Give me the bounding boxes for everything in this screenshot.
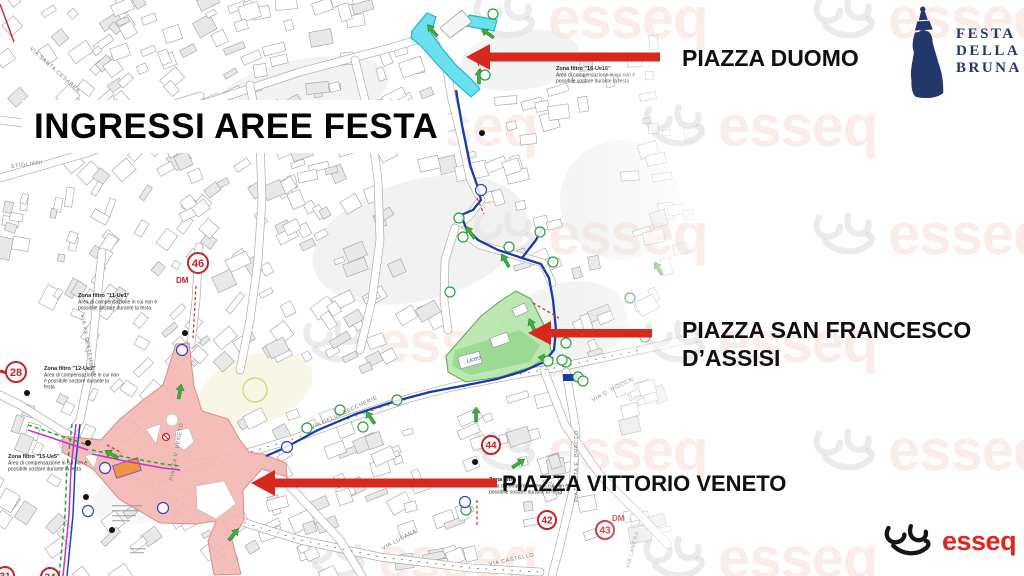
numbered-marker-43: 43 xyxy=(596,521,614,539)
building-block xyxy=(180,44,197,58)
building-block xyxy=(683,125,705,144)
building-block xyxy=(366,333,386,350)
green-gate-marker xyxy=(454,213,464,223)
junction-dot xyxy=(83,494,89,500)
building-block xyxy=(241,50,262,65)
numbered-marker-46: 46 xyxy=(188,253,208,273)
building-block xyxy=(130,536,147,552)
blue-gate-marker xyxy=(476,185,487,196)
marker-number: 31 xyxy=(0,572,11,576)
street-name: PIAZZETTA E. BRACCO xyxy=(574,430,580,502)
green-gate-marker xyxy=(625,293,635,303)
building-block xyxy=(8,0,21,7)
building-block xyxy=(199,218,219,238)
building-block xyxy=(523,501,533,512)
building-block xyxy=(253,63,267,77)
filter-note: Zona filtro "12-Ue2"Area di compensazion… xyxy=(44,366,119,391)
building-block xyxy=(359,362,373,374)
building-block xyxy=(187,168,203,183)
building-block xyxy=(11,236,30,251)
building-block xyxy=(352,0,375,14)
building-block xyxy=(206,9,217,18)
blue-gate-marker xyxy=(100,463,111,474)
green-gate-marker xyxy=(557,355,567,365)
building-block xyxy=(588,255,601,270)
building-block xyxy=(262,42,285,56)
blue-gate-marker xyxy=(177,345,188,356)
building-block xyxy=(572,267,583,280)
green-gate-marker xyxy=(543,356,553,366)
building-block xyxy=(520,134,537,146)
building-block xyxy=(329,331,351,349)
building-block xyxy=(11,415,24,434)
building-block xyxy=(547,83,569,96)
junction-dot xyxy=(472,459,478,465)
building-block xyxy=(171,260,180,269)
green-gate-marker xyxy=(392,395,402,405)
numbered-marker-44: 44 xyxy=(482,436,500,454)
micro-note-line xyxy=(112,510,140,511)
street-name: VIA CASTELLO xyxy=(489,552,535,567)
building-block xyxy=(136,63,148,74)
building-block xyxy=(411,469,424,486)
filter-note-title: Zona filtro "15-Ue5" xyxy=(8,454,60,460)
green-gate-marker xyxy=(488,9,498,19)
building-block xyxy=(162,322,178,337)
building-block xyxy=(300,238,316,251)
numbered-marker-31: 31 xyxy=(0,567,14,576)
micro-note-line xyxy=(130,548,146,549)
junction-dot xyxy=(109,527,115,533)
building-block xyxy=(50,208,57,218)
building-block xyxy=(419,87,433,99)
building-block xyxy=(95,89,114,107)
building-block xyxy=(506,426,531,447)
micro-note-line xyxy=(112,505,142,506)
slide: esseqesseqesseqesseqesseqesseqesseqesseq… xyxy=(0,0,1024,576)
building-block xyxy=(68,40,93,63)
building-block xyxy=(663,130,671,136)
building-block xyxy=(133,313,148,329)
building-block xyxy=(642,117,651,124)
building-block xyxy=(9,212,23,222)
building-block xyxy=(284,19,294,31)
building-block xyxy=(0,474,4,490)
building-block xyxy=(51,29,69,47)
no-entry-sign xyxy=(163,434,170,441)
marker-number: 34 xyxy=(44,573,56,576)
building-block xyxy=(157,161,175,176)
numbered-marker-42: 42 xyxy=(538,511,556,529)
building-block xyxy=(318,565,339,576)
building-block xyxy=(297,169,318,183)
building-block xyxy=(72,566,91,576)
building-block xyxy=(134,220,149,238)
marker-number: 46 xyxy=(192,258,204,270)
building-block xyxy=(91,181,103,196)
building-block xyxy=(234,19,249,32)
building-block xyxy=(141,13,157,25)
building-block xyxy=(139,185,152,201)
building-block xyxy=(618,416,641,435)
marker-number: 28 xyxy=(10,367,22,379)
building-block xyxy=(213,326,237,350)
green-gate-marker xyxy=(504,242,514,252)
building-block xyxy=(515,200,526,210)
green-gate-marker xyxy=(458,232,468,242)
building-block xyxy=(151,261,165,276)
building-block xyxy=(290,142,314,161)
building-block xyxy=(41,5,56,18)
building-block xyxy=(150,146,160,156)
green-gate-marker xyxy=(445,287,455,297)
building-block xyxy=(365,488,388,501)
building-block xyxy=(648,35,658,50)
building-block xyxy=(667,204,684,216)
building-block xyxy=(0,488,20,513)
building-block xyxy=(546,219,562,231)
filter-note: Zona filtro "11-Ue1"Area di compensazion… xyxy=(78,293,157,312)
plaza-fountain xyxy=(166,414,178,426)
marker-number: 42 xyxy=(541,516,553,527)
micro-note-line xyxy=(130,552,144,553)
marker-number: 43 xyxy=(599,526,611,537)
junction-dot xyxy=(479,130,485,136)
building-block xyxy=(418,155,441,172)
building-block xyxy=(311,0,333,15)
building-block xyxy=(223,42,245,56)
marker-number: 44 xyxy=(485,441,497,452)
building-block xyxy=(645,71,653,80)
junction-dot xyxy=(182,330,188,336)
building-block xyxy=(337,3,352,22)
building-block xyxy=(234,158,251,172)
blue-gate-marker xyxy=(83,506,94,517)
filter-note-line: possibile sostare durante la festa xyxy=(78,306,151,312)
blue-gate-marker xyxy=(460,497,471,508)
building-block xyxy=(108,563,132,576)
building-block xyxy=(547,104,569,121)
building-block xyxy=(162,24,182,43)
city-map: 46284442433134DMDMZona filtro "16-Ue16"A… xyxy=(0,0,1024,576)
micro-note-line xyxy=(112,515,136,516)
building-block xyxy=(134,336,150,351)
building-block xyxy=(170,304,186,320)
building-block xyxy=(112,158,136,182)
green-gate-marker xyxy=(548,257,558,267)
building-block xyxy=(535,100,550,112)
building-block xyxy=(67,8,78,19)
building-block xyxy=(141,45,157,56)
building-block xyxy=(290,159,305,169)
building-block xyxy=(495,95,517,105)
building-block xyxy=(506,121,517,131)
building-block xyxy=(223,68,237,79)
building-block xyxy=(275,0,298,11)
building-block xyxy=(0,48,16,68)
green-gate-marker xyxy=(535,227,545,237)
filter-note-line: possibile sostare durante la festa xyxy=(489,490,562,496)
junction-dot xyxy=(85,440,91,446)
green-gate-marker xyxy=(640,332,650,342)
building-block xyxy=(280,301,296,318)
micro-note-line xyxy=(112,520,130,521)
building-block xyxy=(371,446,396,467)
junction-dot xyxy=(24,390,30,396)
building-block xyxy=(402,428,413,436)
building-block xyxy=(196,0,219,11)
building-block xyxy=(315,134,324,142)
blue-gate-marker xyxy=(282,442,293,453)
dm-label: DM xyxy=(176,276,189,285)
building-block xyxy=(399,56,426,78)
building-block xyxy=(133,358,153,378)
building-block xyxy=(259,288,273,299)
filter-note-title: Zona filtro "11-Ue1" xyxy=(78,293,130,299)
building-block xyxy=(627,60,642,67)
building-block xyxy=(111,0,135,17)
building-block xyxy=(639,91,656,101)
building-block xyxy=(577,96,588,112)
building-block xyxy=(309,29,333,48)
filter-note-line: festa xyxy=(44,385,55,391)
building-block xyxy=(395,305,417,326)
green-gate-marker xyxy=(480,70,490,80)
building-block xyxy=(506,391,529,404)
building-block xyxy=(127,145,143,162)
building-block xyxy=(226,292,245,314)
blue-gate-marker xyxy=(158,503,169,514)
numbered-marker-34: 34 xyxy=(41,568,59,576)
green-gate-marker xyxy=(561,338,571,348)
building-block xyxy=(342,351,358,363)
building-block xyxy=(8,87,28,107)
building-block xyxy=(47,474,61,487)
dm-label: DM xyxy=(612,514,625,523)
filter-note-line: possibile sostare durante la festa xyxy=(556,79,629,85)
building-block xyxy=(64,187,74,207)
building-block xyxy=(3,201,14,214)
building-block xyxy=(483,413,493,422)
filter-note: Zona filtro "16-Ue16"Area di compensazio… xyxy=(556,66,635,85)
building-block xyxy=(683,209,696,221)
building-block xyxy=(621,171,640,181)
green-gate-marker xyxy=(358,422,368,432)
building-block xyxy=(211,29,229,47)
duomo-building xyxy=(440,10,472,38)
building-block xyxy=(337,143,355,157)
building-block xyxy=(386,124,411,145)
filter-note-line: possibile sostare durante la festa xyxy=(8,467,81,473)
street-name: VIA LANERA xyxy=(625,531,641,569)
filter-note-title: Zona filtro "16-Ue16" xyxy=(556,66,611,72)
building-block xyxy=(438,155,458,175)
building-block xyxy=(212,269,237,292)
green-gate-marker xyxy=(578,376,588,386)
numbered-marker-28: 28 xyxy=(6,362,26,382)
building-block xyxy=(110,43,131,61)
building-block xyxy=(57,254,65,262)
building-block xyxy=(672,242,688,256)
building-block xyxy=(306,81,330,94)
filter-note-title: Zona filtro xyxy=(489,477,517,483)
building-block xyxy=(380,348,397,365)
building-block xyxy=(423,132,436,150)
building-block xyxy=(245,540,260,554)
building-block xyxy=(157,49,171,66)
building-block xyxy=(648,123,658,134)
building-block xyxy=(14,501,37,525)
building-block xyxy=(156,228,178,251)
building-block xyxy=(577,494,597,512)
